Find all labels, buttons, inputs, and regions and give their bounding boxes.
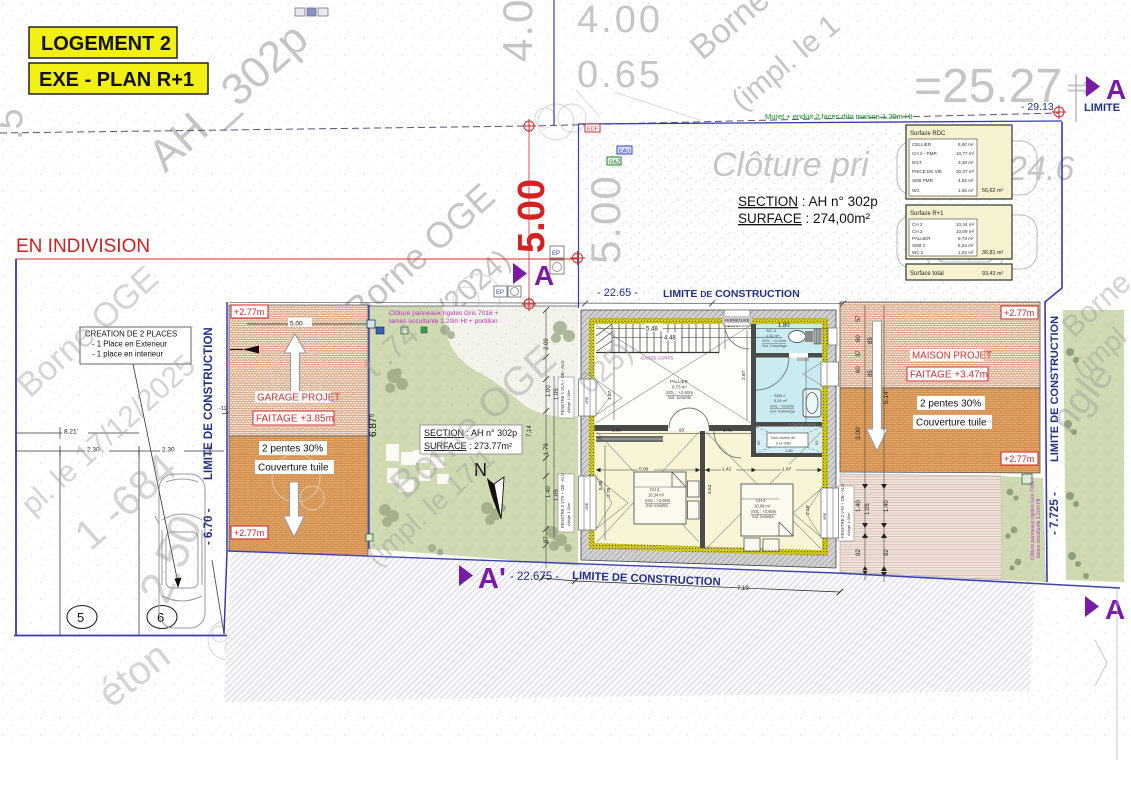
svg-text:92: 92 <box>856 549 862 556</box>
svg-text:Couverture tuile: Couverture tuile <box>258 463 329 474</box>
svg-text:FENETRE 2 VTX + OB - ALU: FENETRE 2 VTX + OB - ALU <box>560 473 565 528</box>
svg-text:GAZ: GAZ <box>609 160 621 166</box>
svg-text:1.41: 1.41 <box>723 428 732 433</box>
svg-text:- 7.725 -: - 7.725 - <box>1049 492 1061 535</box>
svg-text:FAITAGE +3.85m: FAITAGE +3.85m <box>256 414 334 425</box>
svg-text:- 1 place en interieur: - 1 place en interieur <box>92 350 163 359</box>
svg-text:1.87: 1.87 <box>607 390 613 400</box>
svg-text:1.87: 1.87 <box>782 467 792 473</box>
svg-text:WC: WC <box>912 188 920 193</box>
svg-text:93,43 m²: 93,43 m² <box>982 271 1003 277</box>
svg-text:5,24 m²: 5,24 m² <box>958 243 974 248</box>
svg-text:8.21': 8.21' <box>64 429 78 436</box>
svg-text:10,34 m²: 10,34 m² <box>956 222 975 227</box>
svg-text:5,90 m²: 5,90 m² <box>958 142 974 147</box>
svg-text:7,14: 7,14 <box>527 425 533 437</box>
svg-text:+2.77m: +2.77m <box>1004 308 1034 318</box>
svg-text:PALLIER: PALLIER <box>670 379 688 384</box>
svg-text:1.40: 1.40 <box>884 500 890 512</box>
svg-text:2.00: 2.00 <box>612 428 621 433</box>
svg-text:1.40: 1.40 <box>546 486 552 498</box>
svg-text:5.48: 5.48 <box>646 327 658 333</box>
svg-text:VRE: VRE <box>823 512 827 520</box>
svg-text:CH 3: CH 3 <box>756 498 766 503</box>
svg-text:LIMITE DE CONSTRUCTION: LIMITE DE CONSTRUCTION <box>663 288 800 300</box>
svg-text:5.00: 5.00 <box>639 467 649 473</box>
svg-text:Non visible dû: Non visible dû <box>771 435 795 440</box>
svg-text:5.00: 5.00 <box>290 321 303 328</box>
svg-text:A: A <box>1106 74 1126 105</box>
svg-text:2.76: 2.76 <box>606 487 612 497</box>
svg-text:PIECE DE VIE: PIECE DE VIE <box>912 169 942 174</box>
svg-text:4.48: 4.48 <box>664 336 676 342</box>
svg-text:1,65 m²: 1,65 m² <box>958 188 974 193</box>
svg-text:FENETRE 2 VTA + OB - ALU: FENETRE 2 VTA + OB - ALU <box>840 484 845 538</box>
svg-text:9,73 m²: 9,73 m² <box>672 385 687 390</box>
svg-text:5.38: 5.38 <box>598 480 604 490</box>
svg-text:36,81 m²: 36,81 m² <box>982 250 1003 256</box>
svg-text:MAISON PROJET: MAISON PROJET <box>912 351 992 362</box>
svg-text:Allège 1.00m: Allège 1.00m <box>566 502 571 526</box>
svg-text:SECTION : AH n° 302p: SECTION : AH n° 302p <box>738 194 878 209</box>
svg-text:85: 85 <box>868 370 874 377</box>
svg-text:10,34 m²: 10,34 m² <box>648 493 665 498</box>
svg-text:10,09 m²: 10,09 m² <box>754 504 771 509</box>
svg-text:60: 60 <box>856 366 862 373</box>
svg-text:10,77 m²: 10,77 m² <box>956 151 975 156</box>
svg-text:Sol: Carrelage: Sol: Carrelage <box>770 409 795 414</box>
svg-text:SURFACE : 274,00m²: SURFACE : 274,00m² <box>738 211 871 226</box>
svg-text:Sol: tomette: Sol: tomette <box>752 514 775 519</box>
svg-text:1.41: 1.41 <box>722 467 732 473</box>
svg-text:A: A <box>1105 594 1125 625</box>
svg-text:- 22.65 -: - 22.65 - <box>597 287 638 299</box>
svg-text:5,24 m²: 5,24 m² <box>774 398 788 403</box>
svg-text:+2.77m: +2.77m <box>234 528 264 538</box>
svg-text:-11': -11' <box>219 406 228 412</box>
svg-text:VRE: VRE <box>585 396 589 404</box>
svg-text:3.00': 3.00' <box>855 426 862 440</box>
svg-text:56,62 m²: 56,62 m² <box>982 188 1003 194</box>
svg-text:Allège 1.00m: Allège 1.00m <box>566 389 571 413</box>
svg-text:5: 5 <box>77 610 84 625</box>
svg-text:PALLIER: PALLIER <box>912 236 931 241</box>
svg-text:4.00: 4.00 <box>577 0 663 41</box>
svg-text:- 29.13 -: - 29.13 - <box>1021 101 1061 113</box>
svg-text:Allège 1.00m: Allège 1.00m <box>846 512 851 536</box>
svg-text:GARDE CORPS: GARDE CORPS <box>641 356 674 361</box>
svg-text:+2.77m: +2.77m <box>234 307 264 317</box>
svg-text:lames occultante 1.20m Ht: lames occultante 1.20m Ht <box>1036 498 1042 558</box>
svg-text:LIMITE DE CONSTRUCTION: LIMITE DE CONSTRUCTION <box>203 327 215 480</box>
svg-text:FL: FL <box>598 436 603 441</box>
svg-text:GARAGE PROJET: GARAGE PROJET <box>257 393 340 404</box>
svg-text:Muret + enduit 2 faces dito ma: Muret + enduit 2 faces dito maison 1.20m… <box>765 112 913 121</box>
svg-text:SDB 2: SDB 2 <box>912 243 926 248</box>
svg-text:1.40: 1.40 <box>856 500 862 512</box>
svg-text:2 pentes 30%: 2 pentes 30% <box>262 444 323 455</box>
svg-text:Sol: tomette: Sol: tomette <box>646 503 669 508</box>
svg-text:FERMETURE: FERMETURE <box>725 318 750 323</box>
svg-text:3.52: 3.52 <box>707 484 713 494</box>
svg-text:93: 93 <box>679 428 685 433</box>
svg-text:37: 37 <box>856 350 862 357</box>
svg-text:FAITAGE +3.47m: FAITAGE +3.47m <box>910 370 988 381</box>
svg-text:Surface RDC: Surface RDC <box>910 131 946 137</box>
svg-text:Sol: tomette: Sol: tomette <box>668 395 692 400</box>
svg-text:Surface total: Surface total <box>910 271 944 277</box>
svg-text:3,38 m²: 3,38 m² <box>958 160 974 165</box>
svg-text:85: 85 <box>868 337 874 344</box>
svg-text:.5: .5 <box>0 108 31 140</box>
svg-text:1.80: 1.80 <box>778 323 790 329</box>
svg-text:CELLIER: CELLIER <box>912 142 932 147</box>
svg-text:Couverture tuile: Couverture tuile <box>916 418 987 429</box>
svg-text:0.65: 0.65 <box>577 54 663 96</box>
svg-text:1.05: 1.05 <box>865 503 871 515</box>
svg-text:A': A' <box>478 563 506 595</box>
svg-text:CH 2: CH 2 <box>912 222 923 227</box>
svg-text:+2.77m: +2.77m <box>1004 454 1034 464</box>
svg-text:VRE: VRE <box>585 502 589 510</box>
svg-text:60: 60 <box>856 335 862 342</box>
svg-text:Clôture panneaux rigides Gris: Clôture panneaux rigides Gris 7016 + <box>389 310 499 317</box>
svg-text:sèche-linge colonne: sèche-linge colonne <box>788 423 817 427</box>
svg-text:CH 2: CH 2 <box>650 487 660 492</box>
svg-text:5.00: 5.00 <box>582 174 629 264</box>
svg-text:87: 87 <box>544 536 550 543</box>
svg-text:WC 2: WC 2 <box>912 250 924 255</box>
svg-text:Clôture pri: Clôture pri <box>712 146 870 184</box>
svg-text:5.14': 5.14' <box>883 390 890 404</box>
svg-text:30,37 m²: 30,37 m² <box>956 169 975 174</box>
svg-text:2.30: 2.30 <box>162 447 175 454</box>
svg-text:2.16': 2.16' <box>805 505 811 515</box>
svg-text:SDB PMR: SDB PMR <box>912 178 934 183</box>
svg-text:57: 57 <box>856 315 862 322</box>
svg-text:Surface R+1: Surface R+1 <box>910 211 944 217</box>
svg-text:2.87: 2.87 <box>741 370 747 380</box>
svg-text:4,55 m²: 4,55 m² <box>958 178 974 183</box>
svg-text:1.80: 1.80 <box>785 448 794 453</box>
svg-text:2 pentes 30%: 2 pentes 30% <box>920 399 981 410</box>
svg-text:92: 92 <box>814 440 819 445</box>
svg-text:EDF: EDF <box>587 127 599 133</box>
svg-text:92: 92 <box>884 549 890 556</box>
svg-text:- 22.675 -: - 22.675 - <box>510 571 559 583</box>
svg-text:CH 3: CH 3 <box>912 229 923 234</box>
svg-text:EP: EP <box>496 290 504 296</box>
svg-text:LOGEMENT 2: LOGEMENT 2 <box>41 33 171 55</box>
svg-text:4.00: 4.00 <box>494 0 541 62</box>
svg-text:Sol: Carrelage: Sol: Carrelage <box>762 343 787 348</box>
svg-text:CH 2 - PMR: CH 2 - PMR <box>912 151 937 156</box>
svg-text:9,73 m²: 9,73 m² <box>958 236 974 241</box>
svg-text:1.00: 1.00 <box>546 385 552 397</box>
svg-text:EP: EP <box>552 251 560 257</box>
svg-text:1.78: 1.78 <box>544 443 550 455</box>
svg-text:EXE - PLAN R+1: EXE - PLAN R+1 <box>39 69 194 91</box>
svg-text:DGT: DGT <box>912 160 922 165</box>
svg-text:6.87⁵: 6.87⁵ <box>368 413 379 437</box>
svg-text:7,19: 7,19 <box>737 586 749 592</box>
svg-text:EN INDIVISION: EN INDIVISION <box>16 236 150 257</box>
svg-text:24.6: 24.6 <box>1007 150 1074 188</box>
svg-text:EAU: EAU <box>619 149 630 155</box>
svg-text:92: 92 <box>756 440 761 445</box>
svg-text:à la SdB: à la SdB <box>776 441 791 446</box>
svg-text:5.00: 5.00 <box>511 179 553 253</box>
svg-text:10,09 m²: 10,09 m² <box>956 229 975 234</box>
svg-text:1,02 m²: 1,02 m² <box>958 250 974 255</box>
